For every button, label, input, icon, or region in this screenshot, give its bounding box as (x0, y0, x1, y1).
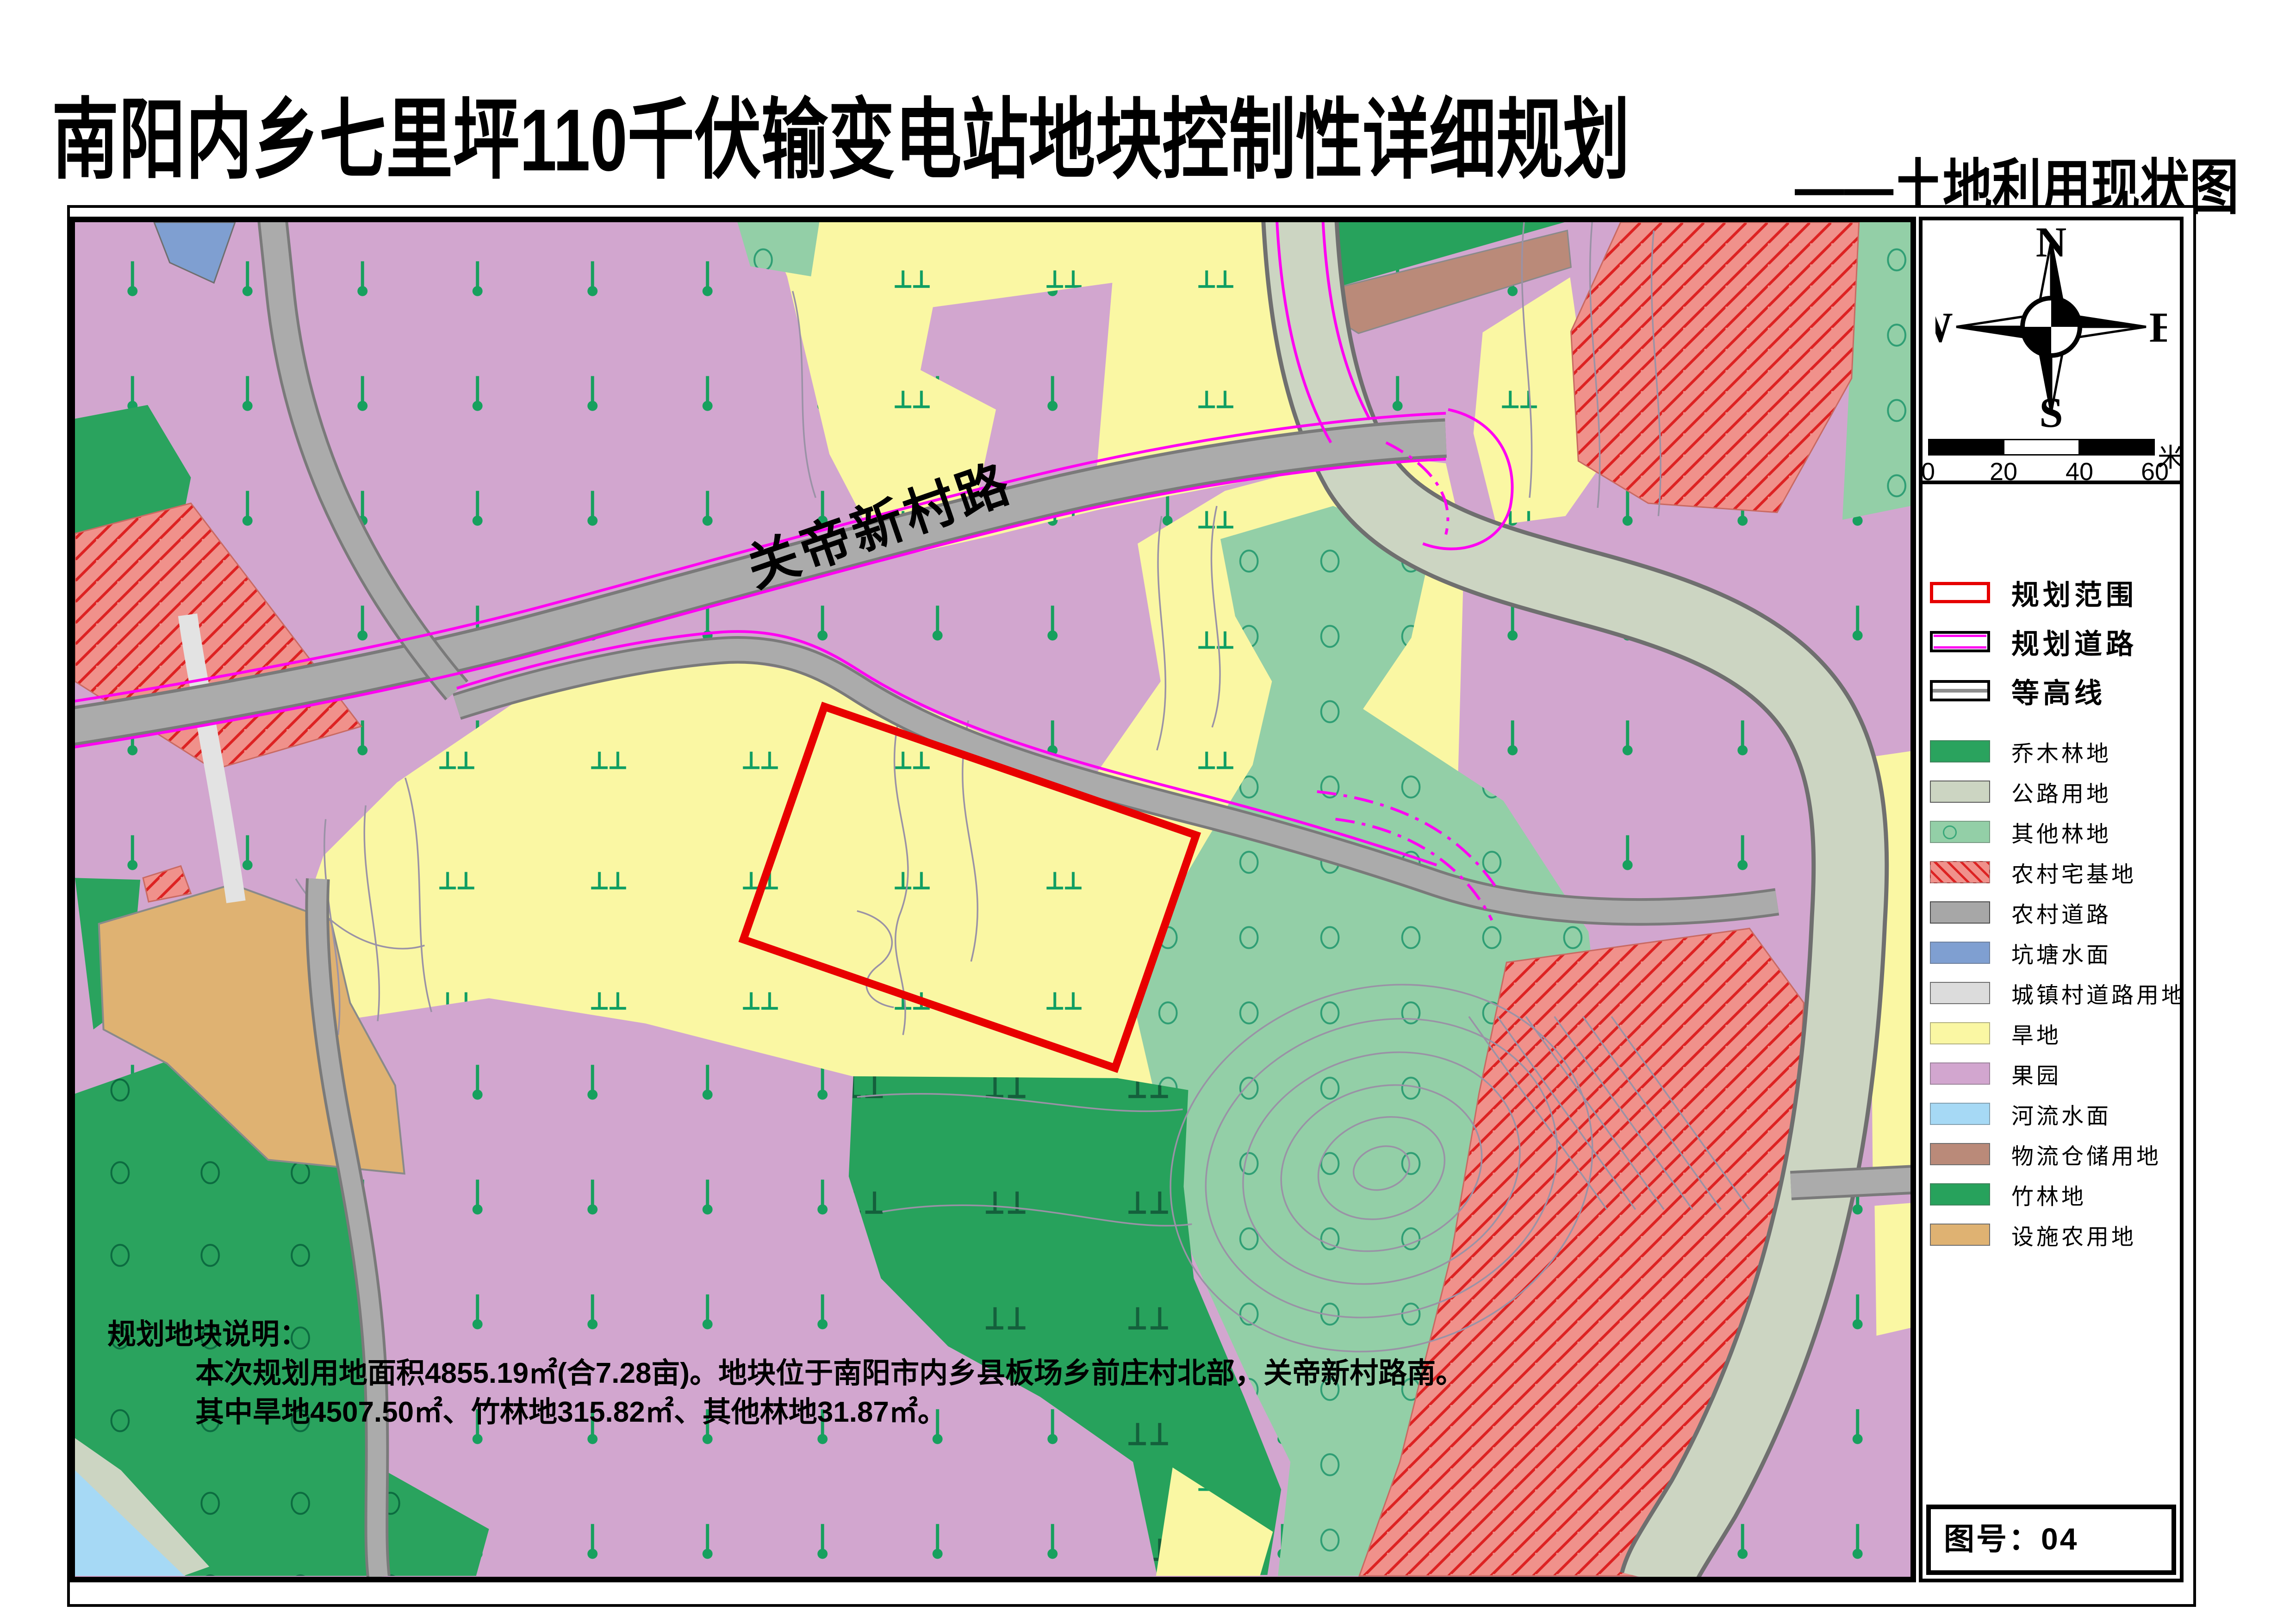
legend-swatch-boundary (1930, 582, 1990, 603)
legend-swatch-contour (1930, 680, 1990, 701)
legend-items: 规划范围规划道路等高线乔木林地公路用地其他林地农村宅基地农村道路坑塘水面城镇村道… (1930, 578, 2171, 1263)
scale-tick-40: 40 (2066, 457, 2093, 486)
legend-label: 等高线 (2011, 671, 2106, 711)
compass-s: S (2039, 389, 2063, 429)
compass-n: N (2036, 225, 2066, 266)
legend-label: 果园 (2011, 1057, 2061, 1090)
scale-segment (1928, 439, 2004, 456)
legend-label: 城镇村道路用地 (2011, 977, 2186, 1009)
legend-item-area-2: 其他林地 (1930, 820, 2171, 844)
legend-item-contour: 等高线 (1930, 676, 2171, 705)
figure-number: 图号：04 (1931, 1509, 2172, 1568)
scale-tick-60: 60 (2141, 457, 2169, 486)
scale-ticks: 0204060 (1928, 457, 2155, 485)
legend-swatch-area-6 (1930, 982, 1990, 1004)
figure-number-box: 图号：04 (1926, 1505, 2176, 1575)
legend-label: 河流水面 (2011, 1098, 2111, 1130)
scale-tick-0: 0 (1921, 457, 1935, 486)
legend-item-area-0: 乔木林地 (1930, 739, 2171, 763)
legend-item-area-1: 公路用地 (1930, 780, 2171, 804)
legend-label: 农村宅基地 (2011, 856, 2136, 888)
legend-label: 旱地 (2011, 1017, 2061, 1049)
legend-swatch-area-10 (1930, 1143, 1990, 1165)
legend-swatch-area-1 (1930, 781, 1990, 803)
legend-swatch-area-7 (1930, 1022, 1990, 1044)
legend-label: 公路用地 (2011, 775, 2111, 808)
legend-label: 设施农用地 (2011, 1218, 2136, 1251)
plot-notes: 规划地块说明： 本次规划用地面积4855.19㎡(合7.28亩)。地块位于南阳市… (107, 1320, 1894, 1427)
legend-swatch-area-8 (1930, 1062, 1990, 1085)
legend-item-area-12: 设施农用地 (1930, 1223, 2171, 1247)
compass-w: W (1935, 304, 1953, 351)
scale-segment (2004, 439, 2078, 456)
legend-label: 规划范围 (2011, 573, 2137, 613)
scale-segment (2078, 439, 2155, 456)
legend-item-area-7: 旱地 (1930, 1021, 2171, 1045)
legend-item-boundary: 规划范围 (1930, 578, 2171, 607)
road-east (1791, 1180, 1910, 1186)
legend-panel: N S W E 米 0204060 规划范围规划道路等高线乔木林地公路用地其他林… (1919, 217, 2184, 1582)
notes-line-2: 其中旱地4507.50㎡、竹林地315.82㎡、其他林地31.87㎡。 (195, 1398, 1894, 1427)
legend-swatch-area-9 (1930, 1103, 1990, 1125)
scale-bar (1928, 439, 2155, 456)
legend-swatch-area-4 (1930, 901, 1990, 924)
notes-line-1: 本次规划用地面积4855.19㎡(合7.28亩)。地块位于南阳市内乡县板场乡前庄… (195, 1359, 1894, 1388)
legend-label: 乔木林地 (2011, 735, 2111, 768)
legend-item-area-4: 农村道路 (1930, 900, 2171, 924)
compass-e: E (2149, 304, 2167, 351)
legend-label: 规划道路 (2011, 622, 2137, 662)
legend-swatch-area-11 (1930, 1183, 1990, 1206)
legend-swatch-area-3 (1930, 861, 1990, 883)
legend-label: 农村道路 (2011, 896, 2111, 929)
legend-item-area-6: 城镇村道路用地 (1930, 981, 2171, 1005)
legend-item-area-11: 竹林地 (1930, 1182, 2171, 1206)
scale-tick-20: 20 (1990, 457, 2017, 486)
legend-swatch-circle-icon (1943, 825, 1957, 839)
legend-item-area-3: 农村宅基地 (1930, 860, 2171, 884)
legend-swatch-area-5 (1930, 942, 1990, 964)
legend-item-road: 规划道路 (1930, 627, 2171, 656)
legend-swatch-road (1930, 631, 1990, 652)
legend-item-area-10: 物流仓储用地 (1930, 1142, 2171, 1166)
notes-heading: 规划地块说明： (107, 1320, 1894, 1349)
plan-sheet: 南阳内乡七里坪110千伏输变电站地块控制性详细规划 ——土地利用现状图 (0, 0, 2296, 1624)
legend-label: 坑塘水面 (2011, 937, 2111, 969)
legend-label: 竹林地 (2011, 1178, 2086, 1211)
legend-swatch-area-2 (1930, 821, 1990, 843)
legend-item-area-5: 坑塘水面 (1930, 941, 2171, 965)
compass-rose: N S W E (1935, 225, 2167, 429)
legend-swatch-area-12 (1930, 1224, 1990, 1246)
legend-swatch-area-0 (1930, 740, 1990, 762)
compass-section: N S W E 米 0204060 (1923, 220, 2180, 484)
legend-label: 其他林地 (2011, 816, 2111, 848)
legend-item-area-9: 河流水面 (1930, 1102, 2171, 1126)
legend-label: 物流仓储用地 (2011, 1138, 2161, 1170)
page-title: 南阳内乡七里坪110千伏输变电站地块控制性详细规划 (52, 69, 1630, 196)
legend-item-area-8: 果园 (1930, 1062, 2171, 1086)
